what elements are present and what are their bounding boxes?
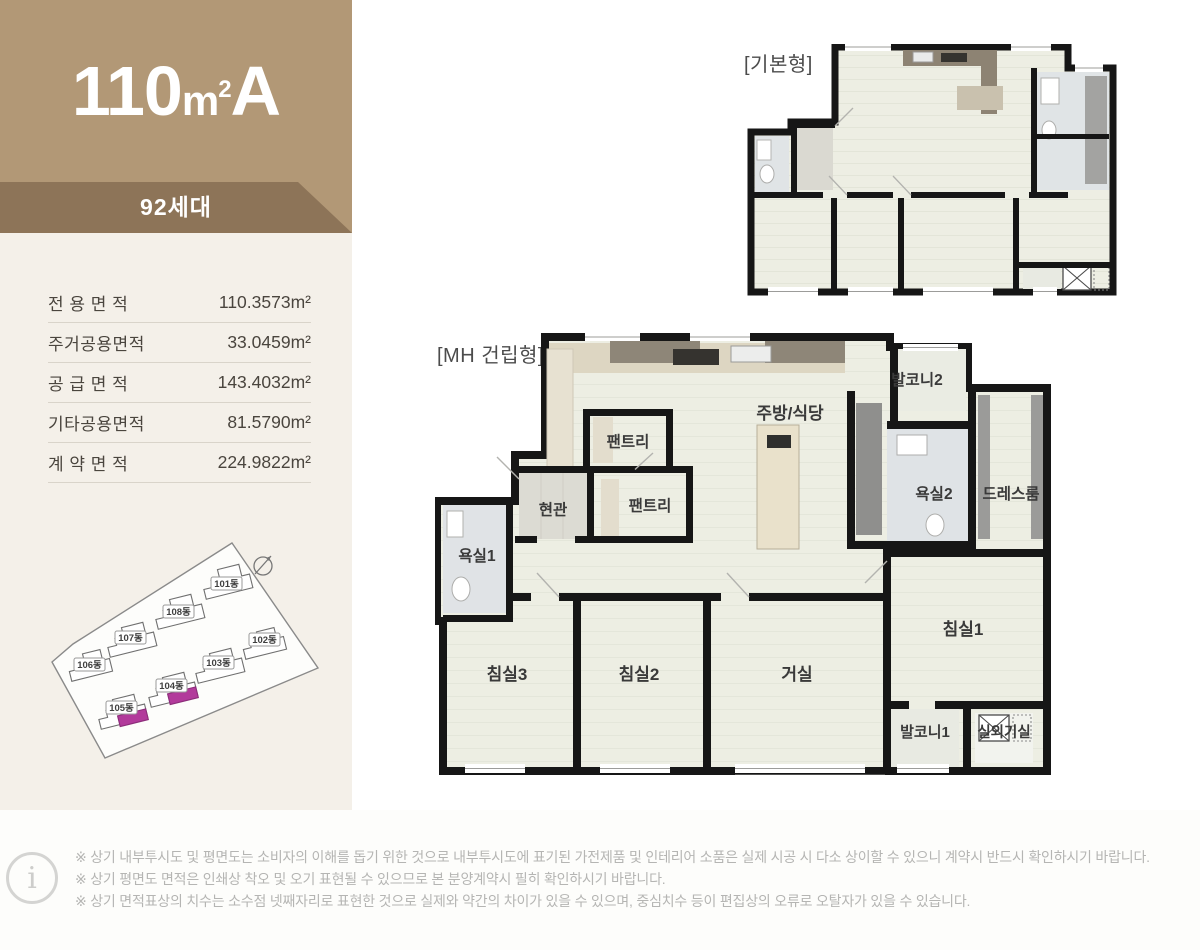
table-row: 기타공용면적 81.5790m² (48, 403, 311, 443)
area-row-label: 전 용 면 적 (48, 290, 128, 315)
unit-title: 110m2A (0, 0, 352, 182)
area-row-label: 주거공용면적 (48, 330, 145, 355)
room-label-pantry-lower: 팬트리 (629, 497, 672, 515)
area-table: 전 용 면 적 110.3573m² 주거공용면적 33.0459m² 공 급 … (48, 283, 311, 483)
svg-text:104동: 104동 (159, 681, 184, 692)
svg-text:106동: 106동 (77, 660, 102, 671)
room-label-entrance: 현관 (539, 500, 568, 519)
room-label-bed1: 침실1 (943, 619, 984, 639)
disclaimer-notes: ※ 상기 내부투시도 및 평면도는 소비자의 이해를 돕기 위한 것으로 내부투… (75, 846, 1150, 912)
room-label-bath2: 욕실2 (915, 485, 952, 503)
svg-text:108동: 108동 (166, 607, 191, 618)
unit-sup: 2 (218, 76, 230, 104)
disclaimer-line: ※ 상기 면적표상의 치수는 소수점 넷째자리로 표현한 것으로 실제와 약간의… (75, 890, 1150, 912)
area-row-label: 기타공용면적 (48, 410, 145, 435)
room-label-dressroom: 드레스룸 (982, 485, 1039, 503)
area-row-value: 33.0459m² (227, 332, 311, 353)
area-row-label: 공 급 면 적 (48, 370, 128, 395)
area-row-label: 계 약 면 적 (48, 450, 128, 475)
building-badge-102: 102동 (249, 633, 280, 646)
site-map: 101동 108동 107동 106동 102동 (40, 540, 320, 770)
building-badge-106: 106동 (74, 658, 105, 671)
room-label-bed2: 침실2 (619, 664, 660, 684)
svg-text:103동: 103동 (206, 658, 231, 669)
disclaimer-line: ※ 상기 내부투시도 및 평면도는 소비자의 이해를 돕기 위한 것으로 내부투… (75, 846, 1150, 868)
room-label-kitchen-dining: 주방/식당 (756, 404, 824, 423)
compass-icon (254, 556, 272, 575)
table-row: 주거공용면적 33.0459m² (48, 323, 311, 363)
building-badge-103: 103동 (203, 656, 234, 669)
left-info-panel: 110m2A 92세대 전 용 면 적 110.3573m² 주거공용면적 33… (0, 0, 352, 810)
svg-text:101동: 101동 (214, 579, 239, 590)
disclaimer-line: ※ 상기 평면도 면적은 인쇄상 착오 및 오기 표현될 수 있으므로 본 분양… (75, 868, 1150, 890)
unit-type-letter: A (231, 0, 281, 182)
info-icon: i (6, 852, 58, 904)
room-label-outdoor-unit: 실외기실 (977, 723, 1030, 741)
room-label-balcony2: 발코니2 (891, 371, 942, 389)
building-badge-101: 101동 (211, 577, 242, 590)
area-row-value: 143.4032m² (218, 372, 311, 393)
room-label-living: 거실 (781, 665, 812, 684)
room-label-bath1: 욕실1 (458, 547, 496, 565)
svg-text:107동: 107동 (118, 633, 143, 644)
unit-header-band: 110m2A (0, 0, 352, 182)
area-row-value: 110.3573m² (219, 292, 311, 313)
building-badge-105: 105동 (106, 701, 137, 714)
building-badge-107: 107동 (115, 631, 146, 644)
building-badge-104: 104동 (156, 679, 187, 692)
unit-m: m (182, 77, 218, 125)
room-label-balcony1: 발코니1 (900, 724, 950, 741)
households-count: 92세대 (0, 182, 352, 233)
building-badge-108: 108동 (163, 605, 194, 618)
room-label-bed3: 침실3 (487, 664, 528, 684)
area-row-value: 224.9822m² (218, 452, 311, 473)
svg-text:105동: 105동 (109, 703, 134, 714)
floor-plan-mh: 주방/식당 발코니2 욕실2 드레스룸 팬트리 팬트리 현관 욕실1 침실3 침… (435, 333, 1053, 775)
table-row: 전 용 면 적 110.3573m² (48, 283, 311, 323)
room-label-pantry-upper: 팬트리 (607, 433, 650, 451)
area-row-value: 81.5790m² (227, 412, 311, 433)
table-row: 공 급 면 적 143.4032m² (48, 363, 311, 403)
households-ribbon: 92세대 (0, 182, 352, 233)
unit-size: 110 (72, 0, 182, 182)
floor-plan-basic (743, 44, 1125, 309)
svg-text:102동: 102동 (252, 635, 277, 646)
footer-disclaimer: i ※ 상기 내부투시도 및 평면도는 소비자의 이해를 돕기 위한 것으로 내… (0, 810, 1200, 950)
table-row: 계 약 면 적 224.9822m² (48, 443, 311, 483)
